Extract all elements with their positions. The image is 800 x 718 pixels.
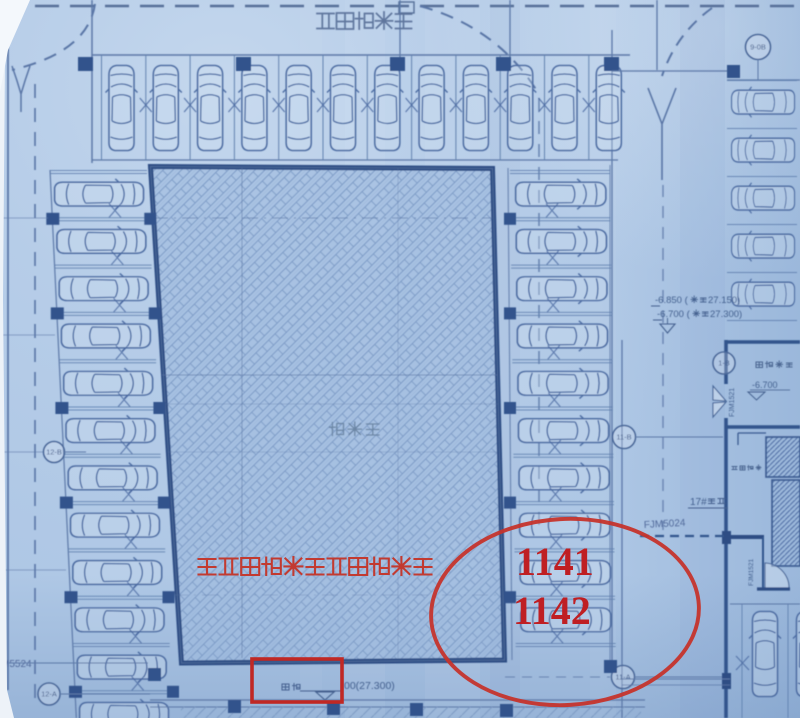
svg-text:-6.850 (: -6.850 ( [655,295,689,306]
svg-text:11-A: 11-A [615,673,630,682]
svg-text:17#: 17# [690,497,707,508]
svg-text:11-B: 11-B [616,433,631,442]
svg-text:1141: 1141 [516,539,594,584]
svg-text:12-A: 12-A [41,690,57,699]
svg-text:FJM1521: FJM1521 [748,559,755,586]
svg-text:-6.700 (: -6.700 ( [657,309,691,320]
svg-text:27.150): 27.150) [708,295,740,306]
svg-text:FJM1521: FJM1521 [729,388,736,417]
svg-text:FJM5024: FJM5024 [644,518,687,531]
svg-text:12-B: 12-B [46,448,62,457]
svg-text:27.300): 27.300) [710,309,742,320]
svg-text:9-0B: 9-0B [750,43,766,52]
svg-text:-6.700: -6.700 [752,380,778,390]
svg-text:1-B: 1-B [718,359,730,368]
svg-text:00(27.300): 00(27.300) [344,680,395,692]
svg-text:1142: 1142 [513,588,591,633]
